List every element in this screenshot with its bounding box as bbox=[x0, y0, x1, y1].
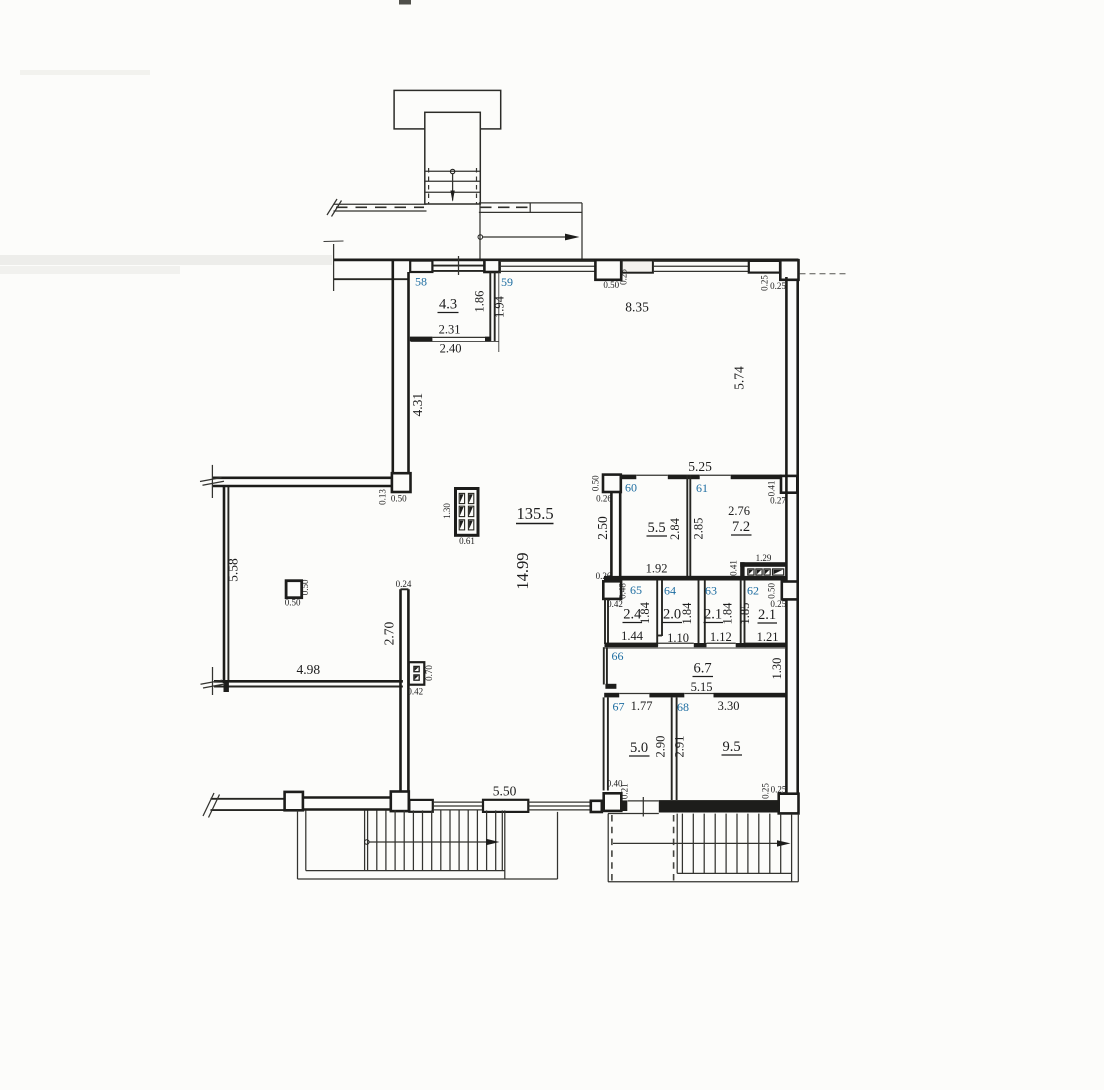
svg-text:6.7: 6.7 bbox=[693, 661, 711, 677]
svg-text:5.74: 5.74 bbox=[732, 366, 747, 390]
svg-text:1.84: 1.84 bbox=[680, 602, 694, 625]
svg-text:66: 66 bbox=[612, 649, 624, 663]
svg-text:1.84: 1.84 bbox=[638, 601, 652, 624]
svg-text:62: 62 bbox=[747, 584, 759, 598]
svg-text:0.70: 0.70 bbox=[424, 665, 434, 681]
svg-text:1.77: 1.77 bbox=[631, 699, 653, 713]
svg-text:0.48: 0.48 bbox=[618, 583, 628, 599]
svg-text:68: 68 bbox=[677, 700, 689, 714]
svg-text:1.21: 1.21 bbox=[757, 630, 779, 644]
svg-text:0.26: 0.26 bbox=[596, 494, 612, 504]
svg-text:14.99: 14.99 bbox=[513, 552, 532, 589]
svg-text:0.50: 0.50 bbox=[285, 597, 301, 607]
svg-text:0.25: 0.25 bbox=[770, 281, 786, 291]
svg-text:65: 65 bbox=[630, 583, 642, 597]
svg-text:5.50: 5.50 bbox=[493, 783, 517, 798]
svg-text:1.12: 1.12 bbox=[710, 630, 732, 644]
svg-text:5.25: 5.25 bbox=[688, 459, 712, 474]
svg-text:2.50: 2.50 bbox=[595, 516, 610, 540]
svg-text:1.94: 1.94 bbox=[492, 295, 506, 318]
svg-text:2.85: 2.85 bbox=[691, 518, 705, 540]
svg-text:5.0: 5.0 bbox=[630, 740, 648, 756]
svg-text:1.85: 1.85 bbox=[738, 603, 752, 625]
svg-text:9.5: 9.5 bbox=[722, 739, 740, 755]
svg-text:0.25: 0.25 bbox=[618, 269, 628, 285]
svg-text:67: 67 bbox=[613, 700, 625, 714]
svg-text:0.50: 0.50 bbox=[766, 583, 776, 599]
svg-text:0.25: 0.25 bbox=[760, 783, 770, 799]
svg-text:59: 59 bbox=[501, 275, 513, 289]
svg-text:0.13: 0.13 bbox=[377, 489, 387, 505]
svg-text:5.5: 5.5 bbox=[647, 520, 665, 536]
svg-text:60: 60 bbox=[625, 481, 637, 495]
svg-text:135.5: 135.5 bbox=[516, 504, 553, 523]
svg-text:1.84: 1.84 bbox=[720, 602, 734, 625]
svg-text:0.50: 0.50 bbox=[300, 579, 310, 595]
svg-text:0.42: 0.42 bbox=[607, 599, 623, 609]
svg-text:2.40: 2.40 bbox=[440, 342, 462, 356]
svg-text:0.27: 0.27 bbox=[770, 496, 786, 506]
svg-text:0.41: 0.41 bbox=[728, 560, 738, 576]
svg-text:0.61: 0.61 bbox=[459, 536, 475, 546]
svg-text:64: 64 bbox=[664, 584, 676, 598]
svg-text:2.90: 2.90 bbox=[654, 736, 668, 758]
svg-text:2.91: 2.91 bbox=[672, 736, 686, 758]
svg-text:1.10: 1.10 bbox=[667, 631, 689, 645]
svg-text:1.86: 1.86 bbox=[473, 291, 487, 313]
svg-text:1.92: 1.92 bbox=[646, 561, 668, 575]
svg-text:0.50: 0.50 bbox=[603, 280, 619, 290]
svg-text:63: 63 bbox=[705, 584, 717, 598]
svg-text:1.30: 1.30 bbox=[770, 658, 784, 680]
svg-text:0.24: 0.24 bbox=[396, 579, 412, 589]
svg-text:0.50: 0.50 bbox=[391, 494, 407, 504]
svg-text:0.50: 0.50 bbox=[591, 475, 601, 491]
svg-text:4.3: 4.3 bbox=[439, 297, 457, 313]
svg-text:2.76: 2.76 bbox=[728, 504, 750, 518]
svg-text:1.44: 1.44 bbox=[621, 629, 644, 643]
svg-text:7.2: 7.2 bbox=[732, 519, 750, 535]
svg-text:0.42: 0.42 bbox=[407, 687, 423, 697]
svg-text:0.41: 0.41 bbox=[766, 481, 776, 497]
svg-text:61: 61 bbox=[696, 481, 708, 495]
svg-text:4.98: 4.98 bbox=[296, 662, 320, 677]
svg-text:4.31: 4.31 bbox=[410, 393, 425, 417]
svg-text:0.26: 0.26 bbox=[596, 571, 612, 581]
svg-text:58: 58 bbox=[415, 275, 427, 289]
svg-text:2.84: 2.84 bbox=[668, 517, 682, 540]
svg-text:2.1: 2.1 bbox=[758, 607, 776, 623]
svg-text:2.31: 2.31 bbox=[439, 323, 461, 337]
svg-text:5.15: 5.15 bbox=[691, 680, 713, 694]
svg-text:3.30: 3.30 bbox=[718, 699, 740, 713]
svg-text:2.70: 2.70 bbox=[382, 621, 397, 645]
svg-text:8.35: 8.35 bbox=[625, 300, 649, 315]
svg-text:5.58: 5.58 bbox=[226, 558, 241, 582]
svg-text:2.0: 2.0 bbox=[663, 607, 681, 623]
svg-text:1.29: 1.29 bbox=[756, 553, 772, 563]
svg-text:0.25: 0.25 bbox=[760, 275, 770, 291]
svg-text:1.30: 1.30 bbox=[442, 503, 452, 519]
